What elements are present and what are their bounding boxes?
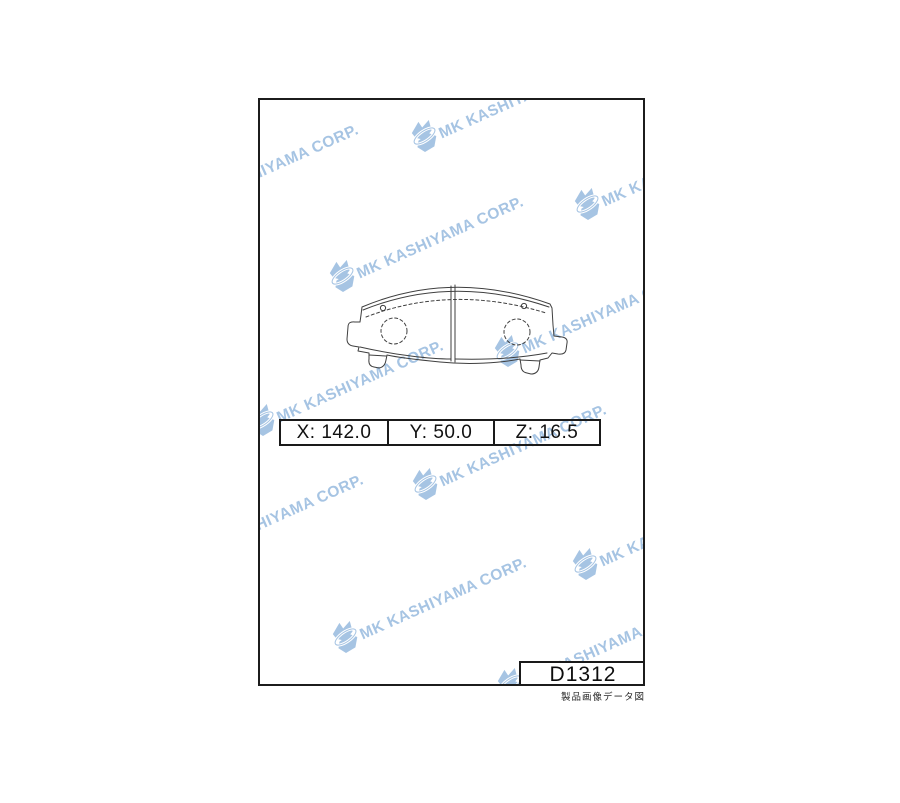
watermark-text: MK KASHIYAMA CORP.: [597, 481, 645, 571]
pad-top-inner-line: [363, 291, 549, 310]
dimensions-table: X: 142.0 Y: 50.0 Z: 16.5: [279, 419, 601, 446]
butterfly-logo-icon: [330, 619, 362, 655]
pad-seam-line: [360, 347, 547, 359]
butterfly-logo-icon: [570, 546, 602, 582]
dimension-cell-y: Y: 50.0: [387, 419, 495, 446]
piston-contact-circle-left: [381, 318, 407, 344]
butterfly-logo-icon: [572, 186, 604, 222]
caption-text: 製品画像データ図: [258, 689, 645, 703]
dimension-cell-x: X: 142.0: [279, 419, 389, 446]
butterfly-logo-icon: [409, 118, 441, 154]
part-number-box: D1312: [519, 661, 645, 686]
pad-friction-dashed-line: [366, 299, 546, 317]
pad-hole-right: [521, 303, 526, 308]
watermark-text: MK KASHIYAMA CORP.: [357, 554, 529, 644]
watermark-text: MK KASHIYAMA CORP.: [258, 471, 367, 561]
watermark-text: MK KASHIYAMA CORP.: [599, 121, 645, 211]
watermark-text: MK KASHIYAMA CORP.: [436, 98, 608, 143]
watermark-text: MK KASHIYAMA CORP.: [354, 193, 526, 283]
butterfly-logo-icon: [410, 466, 442, 502]
dimension-cell-z: Z: 16.5: [493, 419, 601, 446]
product-image-frame: MK KASHIYAMA CORP. MK KASHIYAMA CORP. MK…: [258, 98, 645, 686]
pad-hole-left: [380, 305, 385, 310]
watermark-text: MK KASHIYAMA CORP.: [258, 121, 362, 211]
butterfly-logo-icon: [258, 402, 279, 438]
pad-center-slot: [451, 285, 455, 362]
page: MK KASHIYAMA CORP. MK KASHIYAMA CORP. MK…: [0, 0, 900, 803]
brake-pad-drawing: [340, 275, 575, 400]
watermark-text: MK KASHIYAMA CORP.: [437, 401, 609, 491]
piston-contact-circle-right: [504, 319, 530, 345]
part-number-text: D1312: [550, 663, 617, 687]
